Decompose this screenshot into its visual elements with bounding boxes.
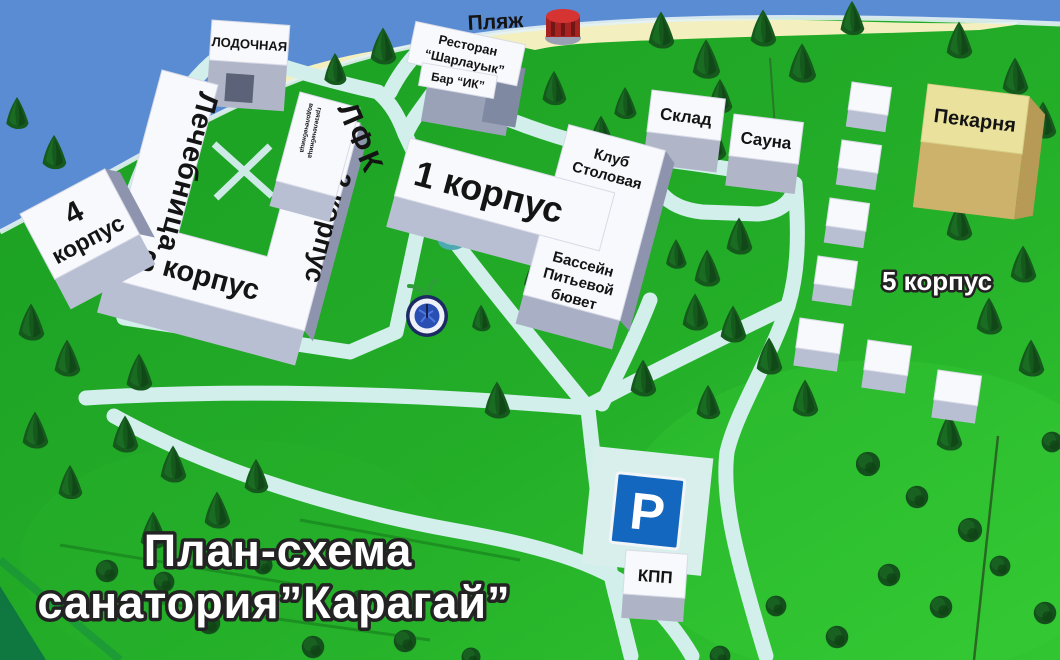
boat-door [224,73,254,103]
cottage [861,340,911,394]
bush-icon [930,596,953,619]
bush-icon [958,518,982,542]
building-bakery: Пекарня [913,84,1047,222]
cottage [793,318,843,372]
bush-icon [1034,602,1057,625]
tower-stripe [551,20,555,36]
cottage [824,198,870,248]
title-line1: План-схема [144,525,413,576]
beach-label: Пляж [467,9,525,35]
bush-icon [766,596,787,617]
cottage [836,140,882,190]
building-sauna: Сауна [725,114,803,194]
bush-icon [990,556,1011,577]
sanatorium-map: ЛОДОЧНАЯ Ресторан “Шарлауык” Бар “ИК” Пе… [0,0,1060,660]
building-checkpoint: КПП [621,550,688,622]
red-tower-icon [545,9,581,45]
parking-symbol: P [627,482,668,543]
bush-icon [394,630,417,653]
parking-sign: P [610,473,685,550]
bush-icon [906,486,929,509]
bush-icon [302,636,325,659]
cottage [931,370,981,424]
building-front-face [621,594,685,622]
bush-icon [878,564,901,587]
cottage [846,82,892,132]
tower-top [546,9,580,23]
korpus5-label: 5 корпус [882,266,992,296]
map-canvas: ЛОДОЧНАЯ Ресторан “Шарлауык” Бар “ИК” Пе… [0,0,1060,660]
title-line2: санатория”Карагай” [37,577,510,628]
bush-icon [856,452,880,476]
checkpoint-label: КПП [637,566,673,587]
bush-icon [826,626,849,649]
cottage [812,256,858,306]
tower-stripe [571,20,575,36]
building-front-face [913,142,1022,220]
